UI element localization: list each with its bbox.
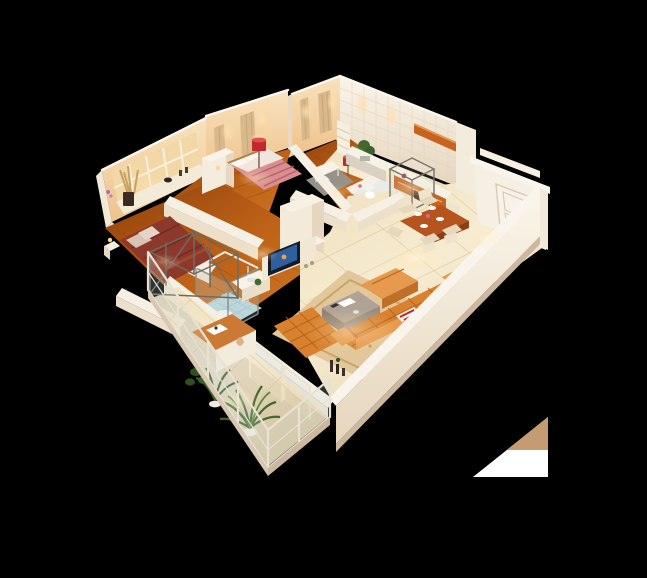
living-light-pool	[306, 308, 398, 352]
kitchen-light-pool	[394, 179, 430, 197]
candle-holder	[179, 170, 182, 176]
master-light-pool	[237, 169, 273, 187]
plate	[420, 224, 428, 228]
flower-vase	[106, 190, 110, 194]
bedside-lamp-glow	[216, 166, 220, 170]
candle-holder	[185, 167, 188, 173]
wall-light-spot	[300, 103, 312, 121]
bedside-lamp-glow	[108, 238, 112, 242]
dining-light-pool	[386, 243, 446, 273]
speaker	[304, 264, 308, 268]
pink-flowers	[426, 214, 430, 218]
plate	[414, 212, 422, 216]
decor-bowl	[164, 178, 172, 183]
study-light-pool	[326, 185, 354, 199]
hall-light-pool	[246, 245, 278, 263]
small-plant	[255, 279, 262, 286]
flower-accent	[358, 184, 362, 188]
balcony-light-pool	[218, 389, 262, 411]
floor-plan-svg	[0, 0, 647, 578]
entry-light-pool	[466, 228, 506, 248]
tv-image-glint	[282, 255, 287, 260]
sink	[360, 156, 370, 161]
wall-light-spot	[326, 93, 338, 111]
wall-light-spot	[255, 110, 269, 130]
plate	[428, 206, 436, 210]
plate	[436, 217, 444, 221]
arch-niche-glow	[355, 91, 369, 117]
wall-light-spot	[221, 122, 235, 142]
render-stage	[0, 0, 647, 578]
arch-niche-glow	[385, 103, 399, 129]
bottle	[214, 326, 217, 329]
speaker	[310, 261, 314, 265]
bedroom2-light-pool	[149, 254, 181, 270]
corner-column	[540, 188, 548, 250]
